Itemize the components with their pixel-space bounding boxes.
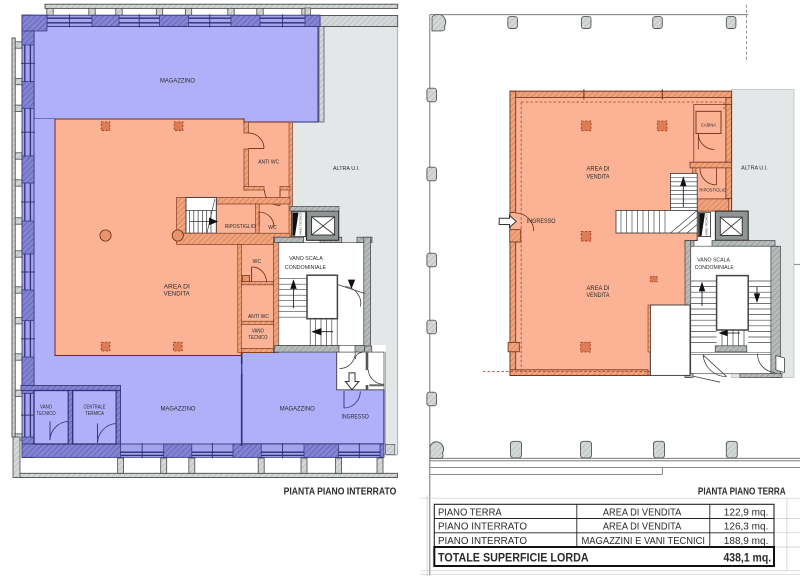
svg-text:AREA DI: AREA DI: [164, 283, 190, 290]
svg-text:AREA DI: AREA DI: [587, 285, 610, 292]
svg-text:RIPOSTIGLIO: RIPOSTIGLIO: [225, 224, 256, 230]
svg-text:VANO TECNICO: VANO TECNICO: [299, 212, 303, 235]
svg-text:PIANO INTERRATO: PIANO INTERRATO: [438, 522, 527, 533]
svg-text:ANTI WC: ANTI WC: [248, 314, 269, 320]
svg-text:PIANTA PIANO TERRA: PIANTA PIANO TERRA: [698, 485, 786, 497]
svg-text:TECNICO: TECNICO: [248, 335, 267, 341]
svg-text:CONDOMINIALE: CONDOMINIALE: [695, 265, 734, 271]
svg-text:MAGAZZINO: MAGAZZINO: [161, 405, 196, 412]
svg-text:INGRESSO: INGRESSO: [342, 414, 369, 421]
svg-text:PIANO TERRA: PIANO TERRA: [438, 507, 502, 518]
svg-text:MAGAZZINO: MAGAZZINO: [280, 405, 315, 412]
svg-text:VENDITA: VENDITA: [164, 291, 191, 298]
svg-text:VANO SCALA: VANO SCALA: [697, 257, 730, 263]
svg-text:ANTI WC: ANTI WC: [258, 160, 279, 166]
svg-text:INGRESSO: INGRESSO: [527, 218, 556, 225]
svg-text:188,9 mq.: 188,9 mq.: [724, 536, 769, 547]
svg-text:TERMICA: TERMICA: [85, 411, 105, 417]
svg-text:126,3 mq.: 126,3 mq.: [724, 522, 769, 533]
svg-text:RIPOSTIGLIO: RIPOSTIGLIO: [699, 188, 726, 193]
svg-text:WC: WC: [268, 225, 277, 231]
svg-text:VENDITA: VENDITA: [587, 173, 611, 180]
svg-text:438,1 mq.: 438,1 mq.: [724, 550, 772, 564]
svg-text:MAGAZZINI E VANI TECNICI: MAGAZZINI E VANI TECNICI: [582, 536, 706, 547]
svg-text:AREA DI VENDITA: AREA DI VENDITA: [603, 522, 681, 533]
svg-text:122,9 mq.: 122,9 mq.: [724, 507, 769, 518]
svg-text:TOTALE SUPERFICIE LORDA: TOTALE SUPERFICIE LORDA: [438, 550, 589, 564]
svg-text:VANO SCALA: VANO SCALA: [289, 256, 323, 262]
svg-text:VANO TECNICO: VANO TECNICO: [705, 213, 709, 236]
svg-text:AREA DI: AREA DI: [587, 165, 610, 172]
svg-text:ALTRA U.I.: ALTRA U.I.: [741, 166, 768, 172]
svg-text:VANO: VANO: [40, 405, 52, 411]
svg-text:VENDITA: VENDITA: [587, 292, 611, 299]
svg-text:VANO: VANO: [252, 329, 264, 335]
svg-text:TECNICO: TECNICO: [37, 411, 56, 417]
svg-text:CONDOMINIALE: CONDOMINIALE: [285, 265, 327, 271]
svg-text:ALTRA U.I.: ALTRA U.I.: [333, 166, 360, 172]
svg-text:AREA DI VENDITA: AREA DI VENDITA: [603, 507, 681, 518]
svg-text:CENTRALE: CENTRALE: [84, 405, 107, 411]
svg-text:PIANTA PIANO INTERRATO: PIANTA PIANO INTERRATO: [284, 485, 397, 497]
svg-text:CABINA: CABINA: [701, 123, 716, 128]
svg-text:PIANO INTERRATO: PIANO INTERRATO: [438, 536, 527, 547]
svg-text:WC: WC: [253, 259, 262, 265]
svg-text:MAGAZZINO: MAGAZZINO: [160, 77, 195, 84]
